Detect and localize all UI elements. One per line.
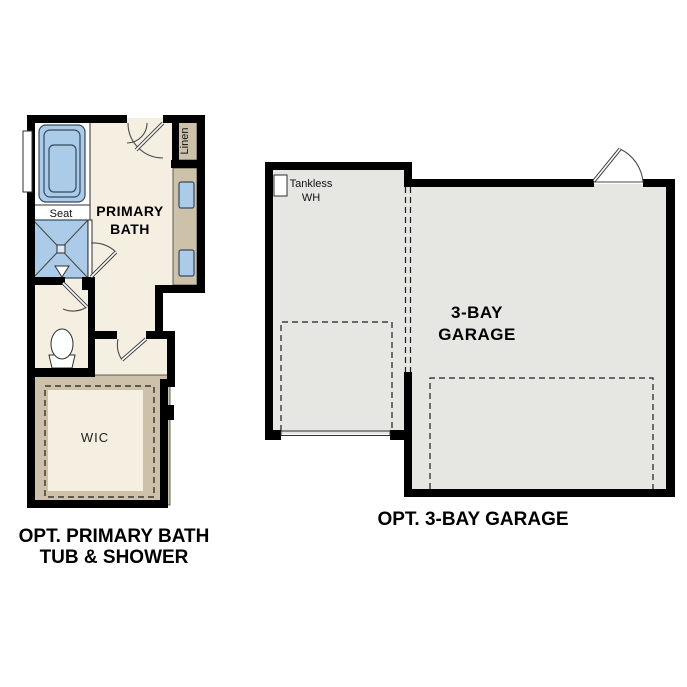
wall-segment bbox=[95, 331, 117, 339]
wall-segment bbox=[160, 379, 175, 387]
door-leaf-line bbox=[594, 149, 620, 181]
wall-segment bbox=[88, 283, 95, 370]
wall-segment bbox=[171, 160, 199, 168]
shower-glass bbox=[88, 220, 92, 278]
floor-plan-image: Seat Linen bbox=[0, 0, 687, 687]
window bbox=[23, 131, 32, 192]
garage-service-door bbox=[594, 149, 643, 182]
wall-segment bbox=[666, 179, 675, 497]
tankless-label-line1: Tankless bbox=[290, 178, 333, 190]
garage-storage-bay-floor bbox=[270, 166, 410, 434]
wall-segment bbox=[167, 331, 175, 386]
wall-segment bbox=[404, 179, 594, 187]
wall-segment bbox=[27, 500, 168, 508]
bath-room-label-line1: PRIMARY bbox=[96, 203, 164, 219]
wall-segment bbox=[265, 162, 273, 440]
bath-room-label-line2: BATH bbox=[110, 221, 150, 237]
garage-caption: OPT. 3-BAY GARAGE bbox=[377, 509, 568, 530]
shower-drain bbox=[57, 245, 65, 253]
wall-segment bbox=[27, 277, 65, 285]
wall-segment bbox=[265, 162, 412, 170]
sink bbox=[179, 182, 194, 208]
wall-segment bbox=[27, 368, 95, 377]
garage-room-label-line2: GARAGE bbox=[438, 325, 516, 344]
bath-plan: Seat Linen bbox=[23, 115, 205, 508]
seat-label: Seat bbox=[50, 208, 73, 220]
wall-segment bbox=[168, 405, 174, 420]
wall-segment bbox=[404, 489, 675, 497]
wall-segment bbox=[160, 386, 168, 508]
bath-caption-line2: TUB & SHOWER bbox=[40, 547, 189, 568]
toilet bbox=[49, 329, 75, 368]
service-door-swing bbox=[594, 149, 643, 182]
wall-segment bbox=[27, 115, 127, 123]
wic-entry-floor bbox=[95, 333, 175, 379]
garage-plan: Tankless WH 3-BAY GARAGE bbox=[265, 149, 675, 497]
bathtub bbox=[39, 125, 85, 202]
garage-room-label-line1: 3-BAY bbox=[451, 303, 503, 322]
sink bbox=[179, 250, 194, 276]
wic-label: WIC bbox=[81, 430, 109, 445]
wall-segment bbox=[172, 122, 179, 164]
linen-label: Linen bbox=[179, 128, 191, 155]
wall-segment bbox=[265, 430, 281, 440]
tankless-water-heater bbox=[274, 175, 287, 196]
bath-caption-line1: OPT. PRIMARY BATH bbox=[19, 526, 210, 547]
tankless-label-line2: WH bbox=[302, 192, 320, 204]
wall-segment bbox=[155, 287, 163, 335]
wall-segment bbox=[390, 430, 412, 440]
wall-segment bbox=[197, 115, 205, 293]
toilet-bowl bbox=[51, 329, 73, 359]
